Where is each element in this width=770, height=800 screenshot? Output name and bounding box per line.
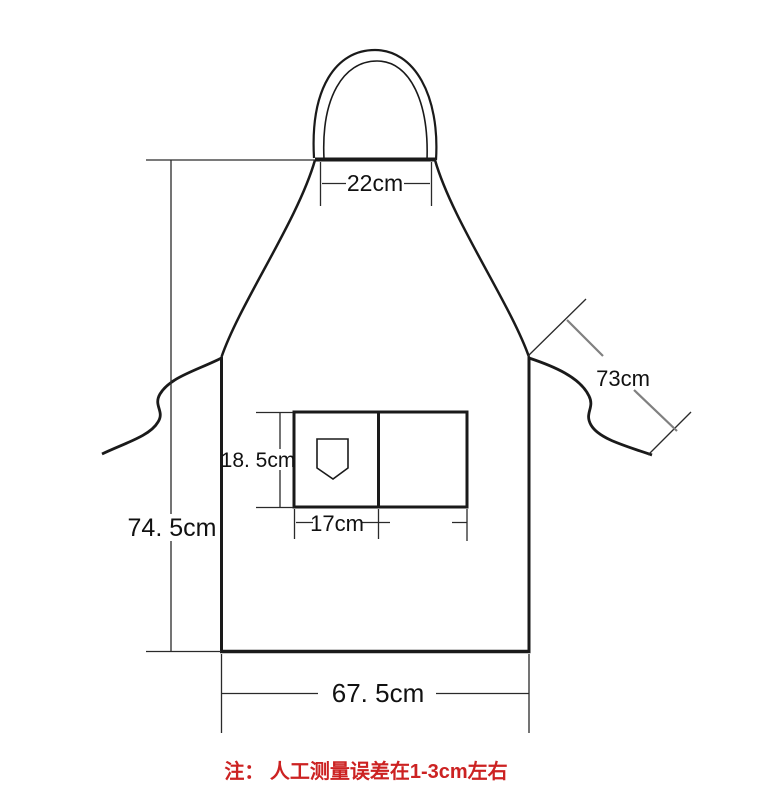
neck-strap-outer <box>314 50 437 160</box>
measurement-note: 注： 人工测量误差在1-3cm左右 <box>224 759 507 783</box>
strap-length-label: 73cm <box>596 366 650 391</box>
armhole-left <box>222 160 316 357</box>
pocket-width-label: 17cm <box>310 511 364 536</box>
apron-diagram: 74. 5cm 22cm 73cm 18. 5cm <box>0 0 770 800</box>
dim-pocket-height: 18. 5cm <box>221 412 296 508</box>
body-height-label: 74. 5cm <box>128 514 217 542</box>
dim-bottom-width: 67. 5cm <box>222 654 530 733</box>
pocket-outline <box>294 412 467 507</box>
apron-diagram-canvas: 74. 5cm 22cm 73cm 18. 5cm <box>0 0 770 800</box>
dim-pocket-width: 17cm <box>295 509 468 541</box>
neck-width-label: 22cm <box>347 170 403 196</box>
apron-body-outline <box>102 50 652 652</box>
dim-strap-upper-tick <box>528 299 586 356</box>
pocket-height-label: 18. 5cm <box>221 449 296 472</box>
dim-neck-width: 22cm <box>321 162 432 206</box>
pocket <box>294 412 467 507</box>
bottom-width-label: 67. 5cm <box>332 678 425 708</box>
dim-strap-lower-tick <box>648 412 691 455</box>
neck-strap-inner <box>324 61 427 160</box>
waist-tie-left <box>102 358 222 454</box>
pocket-badge-icon <box>317 439 348 479</box>
armhole-right <box>435 160 529 357</box>
dim-strap-length: 73cm <box>528 299 691 455</box>
